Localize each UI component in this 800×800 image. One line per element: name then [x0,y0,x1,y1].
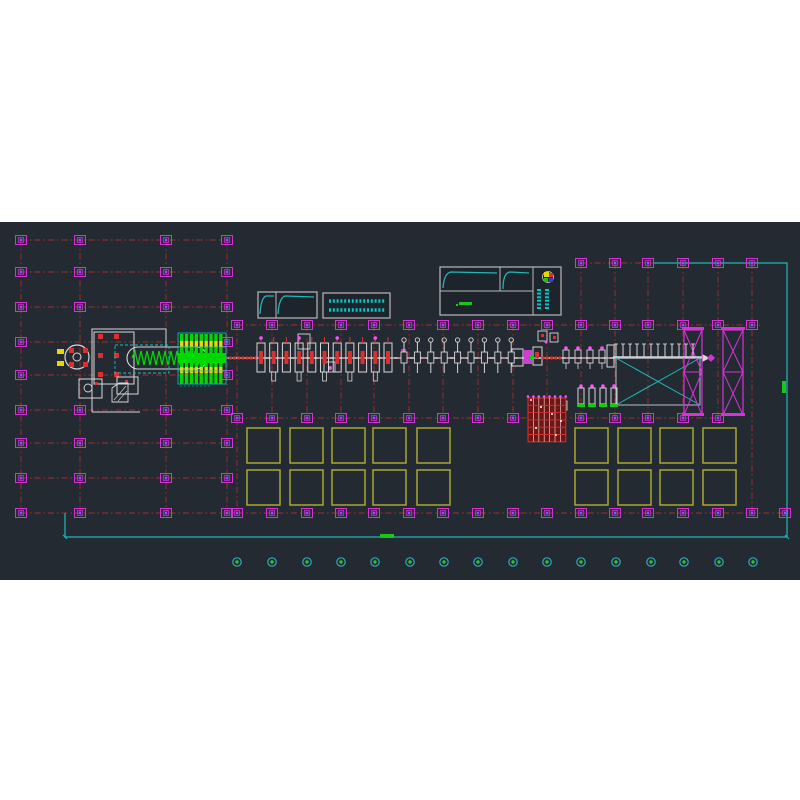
uncoiler-red-1 [69,348,74,353]
overline-red-1 [541,334,544,337]
cutoff-red [535,352,539,358]
post-stand-block [468,352,474,363]
anchor-circle-dot [614,560,617,563]
anchor-circle-dot [442,560,445,563]
roll-stand-magenta-dot [335,336,339,340]
grid-marker-dot [306,324,308,326]
grid-marker-dot [165,306,167,308]
grid-marker-dot [226,409,228,411]
grid-marker-dot [477,417,479,419]
post-stand-block [455,352,461,363]
grid-marker-dot [20,512,22,514]
grid-marker-dot [20,239,22,241]
panel-d-logo-red [549,273,553,277]
stacker-white-dot [530,399,532,401]
grid-marker-dot [784,512,786,514]
roll-stand-roll [284,351,288,364]
cad-page [0,0,800,800]
grid-marker-dot [340,512,342,514]
grid-marker-dot [442,324,444,326]
strip-dot [241,356,244,359]
grid-marker-dot [79,239,81,241]
leveler-roller-stripe [214,367,217,373]
grid-marker-dot [236,417,238,419]
grid-marker-dot [647,324,649,326]
post-stand-block [441,352,447,363]
dimension-label-green [782,381,786,393]
leveler-roller-stripe [205,341,208,347]
grid-marker-dot [580,417,582,419]
uncoiler-pad-yellow-1 [57,349,64,354]
roll-stand-roll [348,351,352,364]
leveler-strip-band [178,353,226,363]
anchor-circle-dot [373,560,376,563]
grid-marker-dot [717,417,719,419]
grid-marker-dot [682,417,684,419]
grid-marker-dot [580,512,582,514]
leveler-roller-stripe [180,367,183,373]
roll-stand-roll [297,351,301,364]
grid-marker-dot [682,512,684,514]
grid-marker-dot [717,262,719,264]
grid-marker-dot [682,262,684,264]
strip-dot [541,356,544,359]
post-stand-block [508,352,514,363]
anchor-circle-dot [717,560,720,563]
drawing-sheet [0,222,800,580]
leveler-roller-stripe [195,341,198,347]
drawing-background [0,0,800,800]
leveler-roller-stripe [205,367,208,373]
grid-marker-dot [165,477,167,479]
grid-marker-dot [306,417,308,419]
cad-drawing-canvas [0,0,800,800]
grid-marker-dot [79,271,81,273]
uncoiler-frame-red-1 [98,334,103,339]
anchor-circle-dot [579,560,582,563]
grid-marker-dot [20,341,22,343]
lower-stand-magenta-dot [601,384,605,388]
roll-stand-roll [361,351,365,364]
grid-marker-dot [165,442,167,444]
stacker-magenta-dot [565,395,568,398]
anchor-circle-dot [270,560,273,563]
grid-marker-dot [751,512,753,514]
uncoiler-frame-red-5 [98,372,103,377]
leveler-roller-stripe [219,367,222,373]
grid-marker-dot [717,512,719,514]
strip-dot [250,356,253,359]
grid-marker-dot [226,306,228,308]
post-stand-block [401,352,407,363]
grid-marker-dot [546,324,548,326]
mid-stand-magenta-dot [600,346,604,350]
tower-1-cap-bottom [682,413,704,416]
grid-marker-dot [512,417,514,419]
tower-2-cap-top [721,327,745,330]
stacker-magenta-dot [532,395,535,398]
overline-red-2 [553,336,556,339]
grid-marker-dot [614,417,616,419]
lower-stand-green-base [577,404,585,407]
grid-marker-dot [79,512,81,514]
uncoiler-red-4 [83,362,88,367]
panel-c-green-label [459,302,472,305]
stacker-magenta-dot [554,395,557,398]
grid-marker-dot [165,512,167,514]
anchor-circle-dot [649,560,652,563]
anchor-circle-dot [305,560,308,563]
post-stand-block [414,352,420,363]
grid-marker-dot [512,512,514,514]
grid-marker-dot [580,262,582,264]
tower-2-cap-bottom [721,413,745,416]
anchor-circle-dot [339,560,342,563]
strip-dot [550,356,553,359]
leveler-roller-stripe [190,367,193,373]
anchor-circle-dot [235,560,238,563]
grid-marker-dot [546,512,548,514]
grid-marker-dot [20,374,22,376]
grid-marker-dot [226,477,228,479]
mid-stand-magenta-dot [564,346,568,350]
cutoff-green [530,355,534,359]
strip-dot [233,356,236,359]
grid-marker-dot [236,512,238,514]
lower-stand-green-base [610,404,618,407]
anchor-circle-dot [751,560,754,563]
uncoiler-pad-yellow-2 [57,361,64,366]
lower-stand-green-base [599,404,607,407]
anchor-circle-dot [511,560,514,563]
anchor-circle-dot [545,560,548,563]
grid-marker-dot [512,324,514,326]
stacker-white-dot [540,406,542,408]
grid-marker-dot [717,324,719,326]
overline-magenta-dot [545,341,548,344]
stacker-white-dot [560,420,562,422]
grid-marker-dot [647,262,649,264]
grid-marker-dot [226,271,228,273]
grid-marker-dot [226,512,228,514]
stacker-magenta-dot [527,395,530,398]
grid-marker-dot [20,442,22,444]
grid-marker-dot [165,239,167,241]
grid-marker-dot [477,324,479,326]
mid-stand-magenta-dot [576,346,580,350]
grid-marker-dot [79,442,81,444]
panel-d-logo-green [544,278,548,282]
anchor-circle-dot [476,560,479,563]
grid-marker-dot [442,512,444,514]
tower-1-cap-top [682,327,704,330]
uncoiler-frame-red-3 [98,353,103,358]
grid-marker-dot [408,512,410,514]
leveler-roller-stripe [200,367,203,373]
grid-marker-dot [751,324,753,326]
grid-marker-dot [165,409,167,411]
grid-marker-dot [647,512,649,514]
grid-marker-dot [271,512,273,514]
grid-marker-dot [226,239,228,241]
leveler-roller-stripe [185,341,188,347]
grid-marker-dot [79,306,81,308]
grid-marker-dot [236,324,238,326]
leveler-roller-stripe [214,341,217,347]
leveler-roller-stripe [200,341,203,347]
grid-marker-dot [20,409,22,411]
roll-stand-magenta-dot [374,336,378,340]
leveler-roller-stripe [219,341,222,347]
grid-marker-dot [408,324,410,326]
grid-marker-dot [20,271,22,273]
roll-stand-roll [259,351,263,364]
panel-d-logo-yellow [544,272,549,277]
stacker-magenta-dot [538,395,541,398]
roll-stand-roll [323,351,327,364]
stacker-grid-block [527,395,567,442]
aux-machine-1-red [95,382,98,385]
lower-stand-magenta-dot [579,384,583,388]
grid-marker-dot [373,417,375,419]
strip-dot [554,356,557,359]
grid-marker-dot [682,324,684,326]
lower-stand-magenta-dot [612,384,616,388]
leveler-roller-stripe [209,367,212,373]
grid-marker-dot [340,417,342,419]
leveler-roller-stripe [209,341,212,347]
strip-dot [237,356,240,359]
panel-c-green-label-dot [456,304,458,306]
panel-d-logo-blue [549,278,553,282]
strip-dot [229,356,232,359]
roll-stand-magenta-dot [297,336,301,340]
roll-stand-roll [373,351,377,364]
grid-marker-dot [271,417,273,419]
roll-stand-magenta-dot [259,336,263,340]
grid-marker-dot [226,442,228,444]
leveler-roller-stripe [195,367,198,373]
lower-stand-magenta-dot [590,384,594,388]
post-stand-block [495,352,501,363]
grid-marker-dot [614,324,616,326]
panel-b-box [323,293,390,318]
roll-stand-roll [386,351,390,364]
roll-stand-roll [335,351,339,364]
grid-marker-dot [408,417,410,419]
grid-marker-dot [373,512,375,514]
grid-marker-dot [751,262,753,264]
stacker-white-dot [535,427,537,429]
leveler-roller-stripe [190,341,193,347]
uncoiler-frame-red-2 [114,334,119,339]
stacker-magenta-dot [548,395,551,398]
grid-marker-dot [20,306,22,308]
mid-stand-magenta-dot [588,346,592,350]
post-stand-block [481,352,487,363]
grid-marker-dot [79,409,81,411]
leveler-roller-stripe [180,341,183,347]
grid-marker-dot [79,477,81,479]
grid-marker-dot [340,324,342,326]
grid-marker-dot [477,512,479,514]
leveler-roller-stripe [185,367,188,373]
dimension-label-green [380,534,394,538]
stacker-magenta-dot [559,395,562,398]
anchor-circle-dot [408,560,411,563]
grid-marker-dot [442,417,444,419]
roll-stand-roll [272,351,276,364]
uncoiler-red-2 [83,348,88,353]
stacker-white-dot [551,413,553,415]
uncoiler-red-3 [69,362,74,367]
grid-marker-dot [580,324,582,326]
strip-dot [246,356,249,359]
grid-marker-dot [20,477,22,479]
stacker-white-dot [555,434,557,436]
post-stand-block [428,352,434,363]
grid-marker-dot [614,262,616,264]
strip-dot [546,356,549,359]
anchor-circle-dot [682,560,685,563]
strip-dot [558,356,561,359]
roll-stand-roll [310,351,314,364]
grid-marker-dot [373,324,375,326]
grid-marker-dot [165,271,167,273]
grid-marker-dot [647,417,649,419]
stacker-magenta-dot [543,395,546,398]
grid-marker-dot [614,512,616,514]
grid-marker-dot [271,324,273,326]
grid-marker-dot [306,512,308,514]
lower-stand-green-base [588,404,596,407]
